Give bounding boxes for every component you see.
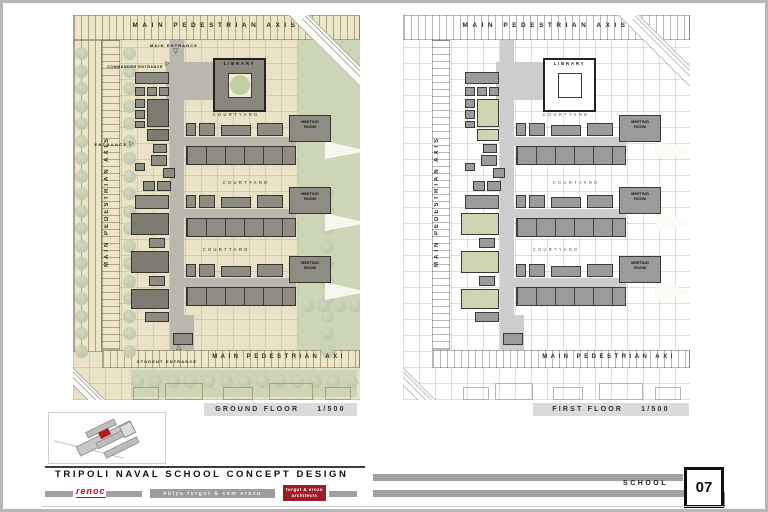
building-outline: [165, 383, 203, 400]
label-courtyard: COURTYARD: [191, 112, 281, 120]
category-label: SCHOOL: [588, 480, 668, 487]
tree: [75, 135, 88, 148]
tree: [75, 257, 88, 270]
room: [186, 195, 196, 208]
building-outline: [269, 383, 313, 400]
label-courtyard: COURTYARD: [531, 180, 621, 188]
room: [257, 264, 283, 277]
label-axis-top: MAIN PEDESTRIAN AXIS: [441, 22, 651, 32]
lab-room: [477, 129, 499, 141]
tree: [301, 299, 314, 312]
first-floor-plan: MEETING ROOMMEETING ROOMMEETING ROOMMAIN…: [403, 15, 690, 400]
room: [551, 197, 581, 208]
library-tree: [230, 75, 250, 95]
caption-name: GROUND FLOOR: [215, 406, 299, 413]
tree: [75, 187, 88, 200]
label-courtyard: COURTYARD: [201, 180, 291, 188]
side-entrance-icon: ▷: [129, 141, 137, 148]
corridor: [514, 278, 626, 287]
tree: [75, 345, 88, 358]
corridor: [184, 209, 296, 218]
tree: [75, 240, 88, 253]
room: [475, 312, 499, 322]
building-outline: [599, 383, 643, 400]
first-floor-caption: FIRST FLOOR 1/500: [533, 403, 689, 416]
room: [587, 264, 613, 277]
corridor: [184, 278, 296, 287]
room: [483, 144, 497, 153]
room: [147, 87, 157, 96]
label-axis-left: MAIN PEDESTRIAN AXIS: [434, 57, 449, 345]
lab-room: [461, 289, 499, 309]
divider-bar: [329, 491, 357, 497]
room: [489, 87, 499, 96]
room: [135, 87, 145, 96]
label-courtyard: COURTYARD: [181, 247, 271, 255]
room: [135, 195, 169, 209]
room: [159, 87, 169, 96]
room: [186, 123, 196, 136]
room: [135, 121, 145, 128]
room: [135, 163, 145, 171]
label-library: LIBRARY: [543, 61, 596, 69]
room: [149, 276, 165, 286]
label-library: LIBRARY: [213, 61, 266, 69]
label-meeting-room: MEETING ROOM: [297, 119, 323, 139]
room: [465, 110, 475, 119]
room: [135, 110, 145, 119]
main-entrance-icon: ▽: [173, 48, 183, 56]
label-entrance: ENTRANCE: [93, 143, 129, 149]
tree: [123, 275, 136, 288]
lab-room: [131, 251, 169, 273]
building-outline: [133, 387, 159, 400]
tree: [75, 47, 88, 60]
caption-scale: 1/500: [317, 406, 346, 413]
building-outline: [655, 387, 681, 400]
caption-name: FIRST FLOOR: [552, 406, 623, 413]
building-outline: [223, 387, 253, 400]
room: [529, 264, 545, 277]
tree: [75, 205, 88, 218]
corner-tick: [724, 492, 725, 507]
tree: [75, 170, 88, 183]
room: [143, 181, 155, 191]
room: [529, 123, 545, 136]
room: [487, 181, 501, 191]
label-axis-left: MAIN PEDESTRIAN AXIS: [104, 57, 119, 345]
room: [516, 264, 526, 277]
classroom-bar: [186, 287, 296, 306]
room: [465, 99, 475, 108]
classroom-bar: [516, 287, 626, 306]
classroom-bar: [186, 146, 296, 165]
lab-room: [131, 213, 169, 235]
building-outline: [463, 387, 489, 400]
commander-entrance-icon: ▷: [165, 61, 173, 68]
corridor: [514, 209, 626, 218]
label-courtyard: COURTYARD: [511, 247, 601, 255]
credit-bar: hülya turgut & cem erozu: [150, 489, 275, 498]
tree: [75, 222, 88, 235]
tree: [349, 299, 360, 312]
room: [186, 264, 196, 277]
tree: [75, 152, 88, 165]
lab-room: [147, 99, 169, 127]
room: [551, 266, 581, 277]
tree: [317, 299, 330, 312]
lab-room: [461, 213, 499, 235]
room: [551, 125, 581, 136]
divider-bar: [45, 491, 73, 497]
tree: [256, 375, 269, 388]
room: [493, 168, 505, 178]
room: [465, 72, 499, 84]
room: [481, 155, 497, 166]
caption-scale: 1/500: [641, 406, 670, 413]
room: [465, 121, 475, 128]
badge-line2: architects: [292, 493, 318, 499]
tree: [75, 65, 88, 78]
room: [221, 197, 251, 208]
sheet-title: TRIPOLI NAVAL SCHOOL CONCEPT DESIGN: [55, 469, 349, 480]
title-rule: [45, 466, 365, 468]
lab-room: [461, 251, 499, 273]
room: [135, 72, 169, 84]
lab-room: [131, 289, 169, 309]
room: [153, 144, 167, 153]
room: [257, 195, 283, 208]
room: [479, 276, 495, 286]
footer-rule: [42, 506, 724, 507]
building-outline: [325, 387, 351, 400]
tree: [123, 170, 136, 183]
lab-room: [477, 99, 499, 127]
room: [257, 123, 283, 136]
tree: [333, 299, 346, 312]
tree: [75, 82, 88, 95]
room: [473, 181, 485, 191]
building-outline: [495, 383, 533, 400]
label-axis-bottom: MAIN PEDESTRIAN AXI: [203, 354, 355, 364]
label-student-entrance: STUDENT ENTRANCE: [129, 359, 205, 365]
label-courtyard: COURTYARD: [521, 112, 611, 120]
corridor: [496, 62, 543, 100]
tree: [123, 345, 136, 358]
classroom-bar: [516, 146, 626, 165]
room: [221, 125, 251, 136]
ground-floor-plan: MEETING ROOMMEETING ROOMMEETING ROOMMAIN…: [73, 15, 360, 400]
room: [157, 181, 171, 191]
tree: [75, 310, 88, 323]
tree: [321, 240, 334, 253]
label-axis-bottom: MAIN PEDESTRIAN AXI: [533, 354, 685, 364]
room: [503, 333, 523, 345]
room: [163, 168, 175, 178]
tree: [123, 310, 136, 323]
room: [587, 195, 613, 208]
lab-room: [147, 129, 169, 141]
room: [135, 99, 145, 108]
room: [479, 238, 495, 248]
label-meeting-room: MEETING ROOM: [627, 260, 653, 280]
building-outline: [553, 387, 583, 400]
tree: [75, 327, 88, 340]
label-meeting-room: MEETING ROOM: [627, 119, 653, 139]
room: [199, 123, 215, 136]
classroom-bar: [516, 218, 626, 237]
room: [465, 87, 475, 96]
room: [145, 312, 169, 322]
renoc-logo: renoc: [76, 487, 106, 498]
tree: [123, 327, 136, 340]
architects-badge: turgut & erozu architects: [283, 485, 326, 501]
corridor: [166, 62, 213, 100]
room: [465, 163, 475, 171]
room: [516, 195, 526, 208]
corridor: [184, 137, 296, 146]
label-commander-entrance: COMMANDER ENTRANCE: [99, 65, 163, 71]
room: [221, 266, 251, 277]
sheet-number-box: 07: [684, 467, 724, 508]
title-bar-bottom: [373, 490, 691, 497]
room: [465, 195, 499, 209]
ground-floor-caption: GROUND FLOOR 1/500: [204, 403, 357, 416]
label-meeting-room: MEETING ROOM: [627, 191, 653, 211]
tree: [75, 292, 88, 305]
label-axis-top: MAIN PEDESTRIAN AXIS: [111, 22, 321, 32]
library-courtyard: [558, 73, 582, 98]
classroom-bar: [186, 218, 296, 237]
label-meeting-room: MEETING ROOM: [297, 260, 323, 280]
tree: [75, 117, 88, 130]
student-entrance-icon: △: [176, 344, 186, 352]
tree: [75, 275, 88, 288]
room: [199, 195, 215, 208]
axonometric-thumbnail: [48, 412, 166, 464]
label-meeting-room: MEETING ROOM: [297, 191, 323, 211]
room: [151, 155, 167, 166]
room: [149, 238, 165, 248]
tree: [75, 100, 88, 113]
room: [587, 123, 613, 136]
room: [477, 87, 487, 96]
room: [529, 195, 545, 208]
tree: [321, 327, 334, 340]
room: [516, 123, 526, 136]
corridor: [514, 137, 626, 146]
room: [199, 264, 215, 277]
divider-bar: [106, 491, 142, 497]
